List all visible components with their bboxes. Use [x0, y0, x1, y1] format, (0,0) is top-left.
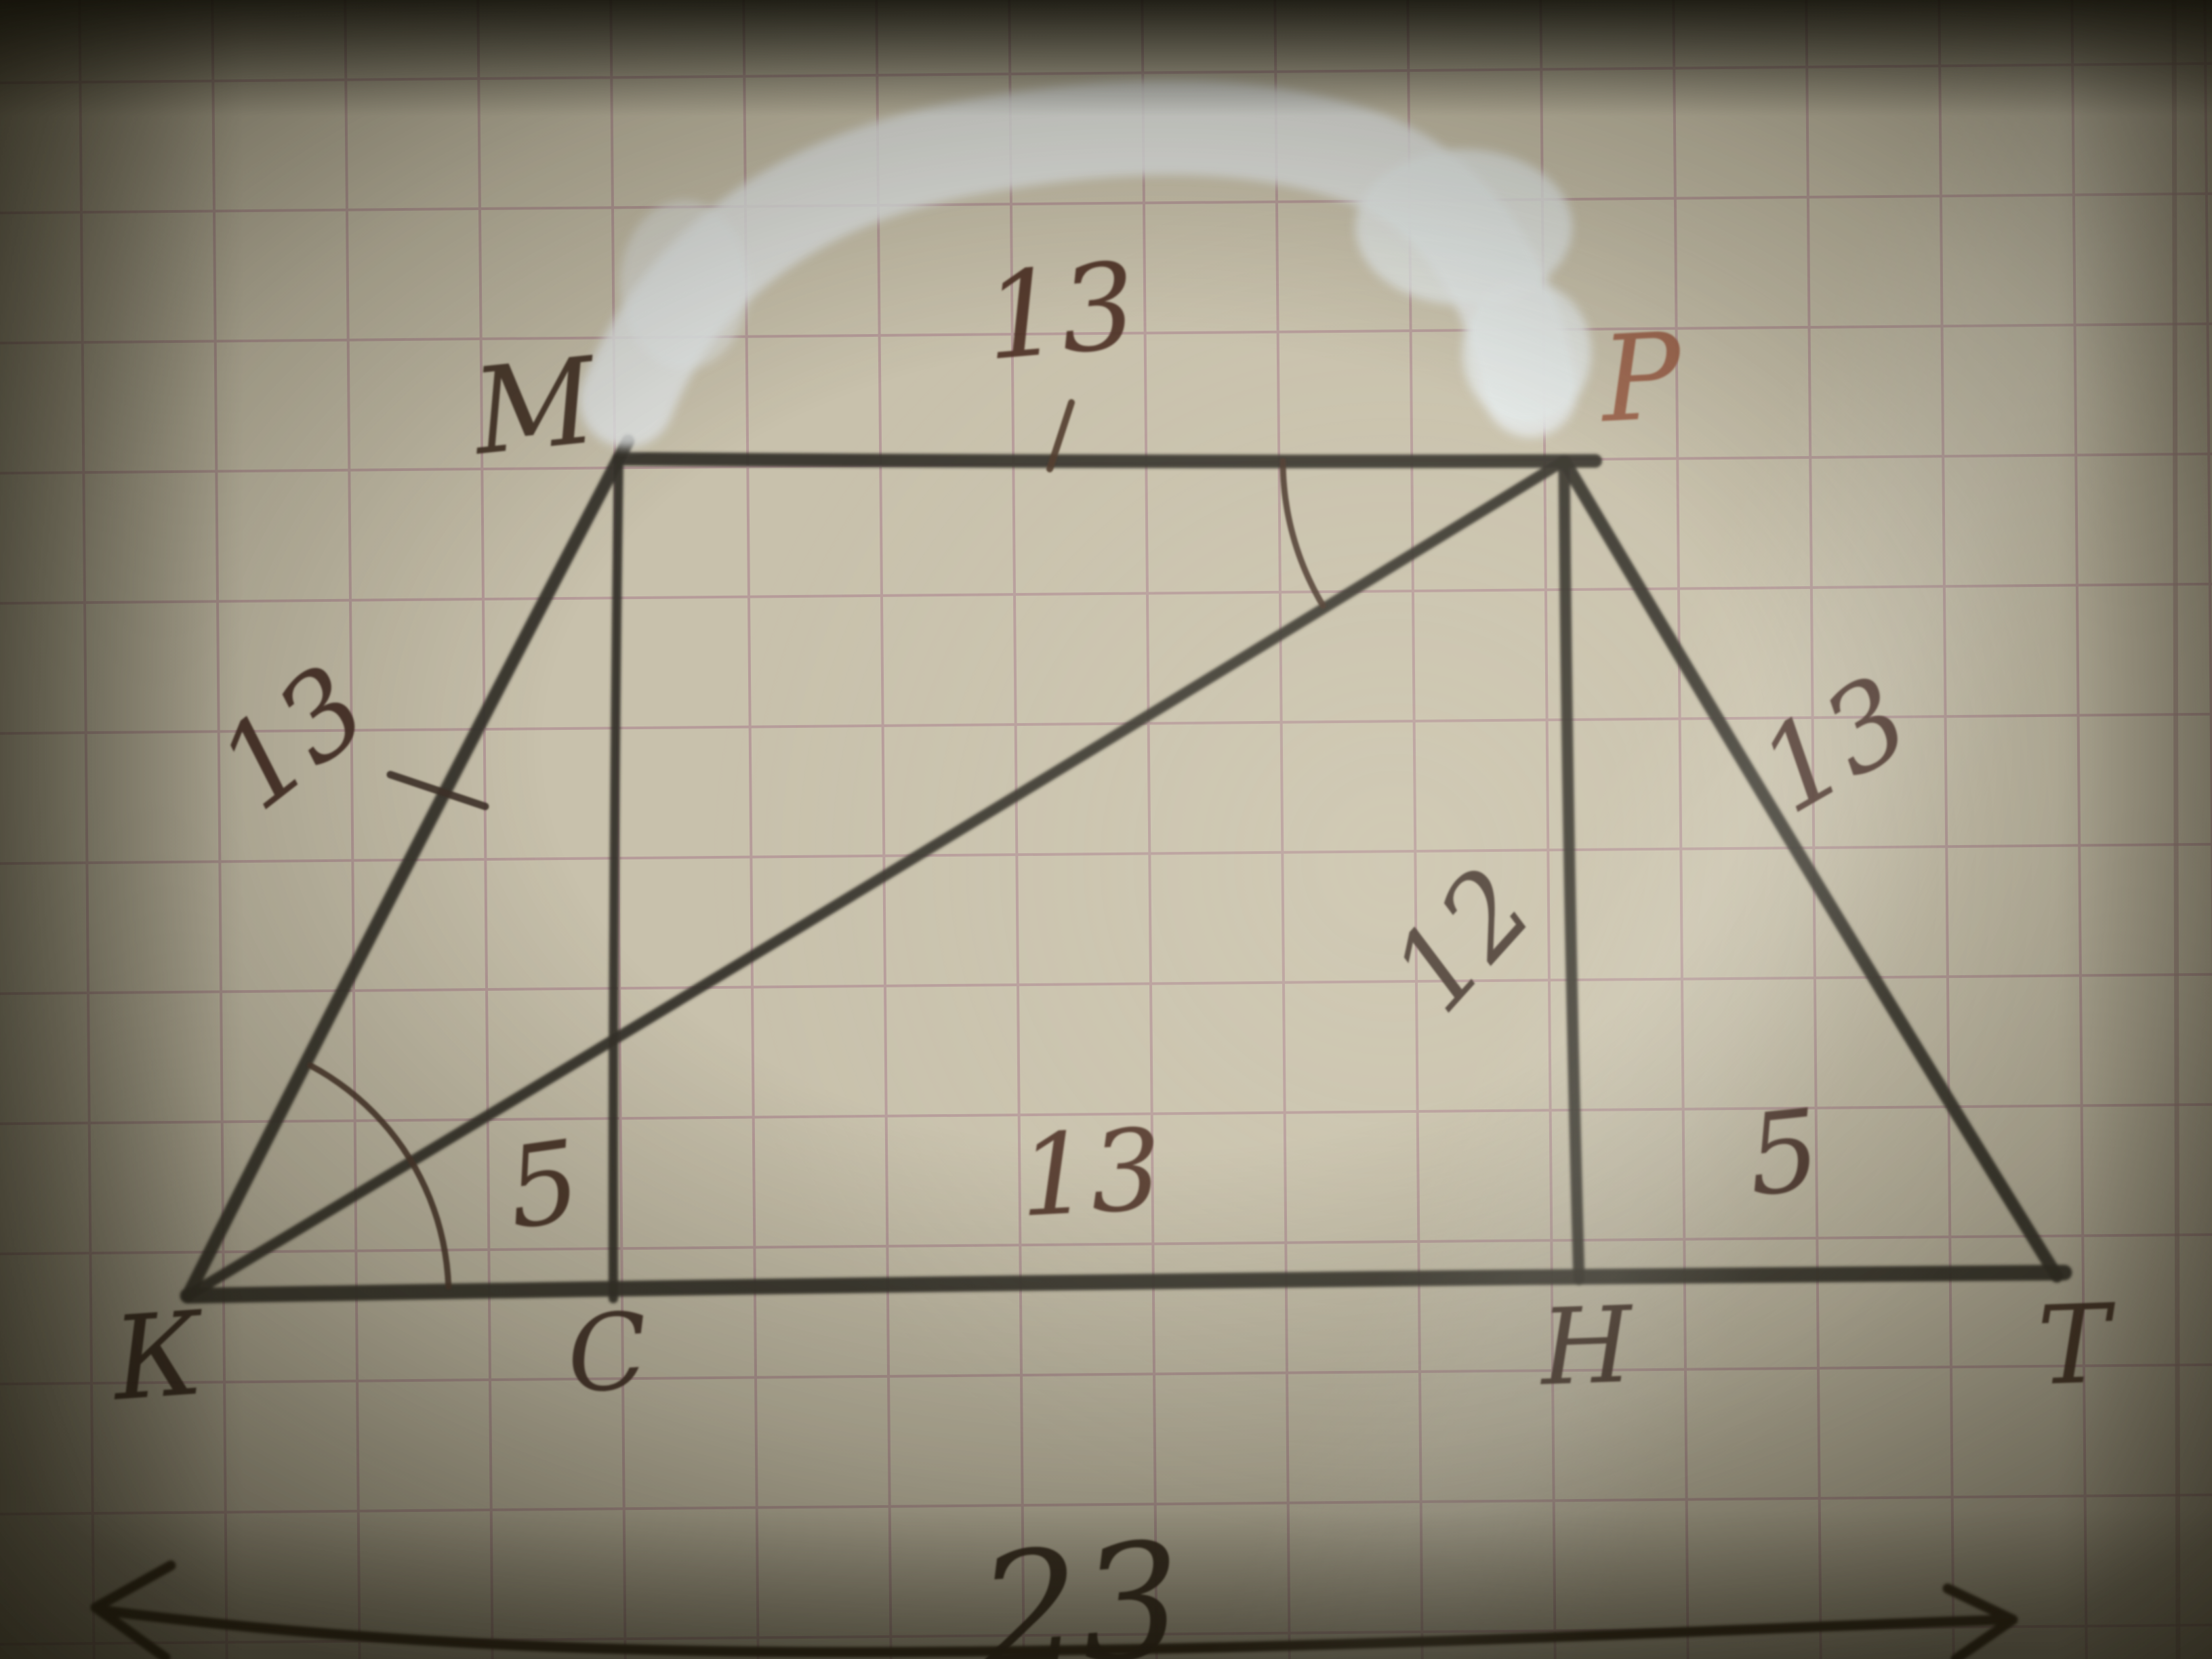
handwritten-labels: КМРТСН13131312513523 — [106, 237, 2119, 1659]
notebook-photo: КМРТСН13131312513523 — [0, 0, 2212, 1659]
measurement-label-KC: 5 — [499, 1115, 588, 1254]
measurement-label-CH: 13 — [1016, 1105, 1165, 1242]
grid-line-vertical — [212, 0, 227, 1659]
measurement-label-MP: 13 — [979, 237, 1142, 388]
edge-KT — [188, 1273, 2064, 1296]
grid-line-vertical — [876, 0, 891, 1659]
grid-line-horizontal — [0, 1364, 2212, 1385]
edge-MP — [619, 459, 1595, 462]
measurement-label-PH: 12 — [1366, 844, 1558, 1037]
whiteout-blob — [1462, 281, 1591, 424]
whiteout-blob — [620, 200, 749, 369]
vertex-label-P: Р — [1596, 308, 1687, 449]
grid-line-horizontal — [0, 63, 2212, 83]
grid-line-horizontal — [0, 583, 2212, 604]
vertex-label-H: Н — [1536, 1284, 1636, 1410]
grid-line-vertical — [1142, 0, 1157, 1659]
whiteout-blob — [1355, 149, 1572, 305]
grid-line-vertical — [478, 0, 493, 1659]
geometry-diagram: КМРТСН13131312513523 — [0, 0, 2212, 1659]
grid-line-vertical — [2072, 0, 2087, 1659]
grid-line-vertical — [2205, 0, 2212, 1659]
grid-line-vertical — [1673, 0, 1688, 1659]
grid-line-horizontal — [0, 1494, 2212, 1515]
ink-marks — [310, 403, 1324, 1287]
vertex-label-T: Т — [2035, 1280, 2118, 1410]
angle-arc-P — [1283, 461, 1323, 606]
dimension-label: 23 — [972, 1508, 1188, 1659]
edge-PH — [1564, 461, 1579, 1279]
vertex-label-K: К — [106, 1286, 209, 1427]
measurement-label-HT: 5 — [1742, 1084, 1826, 1221]
pencil-lines — [96, 441, 2064, 1659]
grid-line-vertical — [1939, 0, 1954, 1659]
page-edge-line — [2174, 0, 2178, 1659]
measurement-label-KM: 13 — [194, 640, 392, 836]
vertex-label-M: М — [465, 332, 605, 482]
edge-MC — [613, 459, 619, 1298]
grid-line-horizontal — [0, 844, 2212, 864]
grid-line-vertical — [1275, 0, 1290, 1659]
grid-line-vertical — [345, 0, 360, 1659]
grid-line-vertical — [79, 0, 94, 1659]
vertex-label-C: С — [563, 1289, 652, 1417]
grid-line-horizontal — [0, 193, 2212, 213]
